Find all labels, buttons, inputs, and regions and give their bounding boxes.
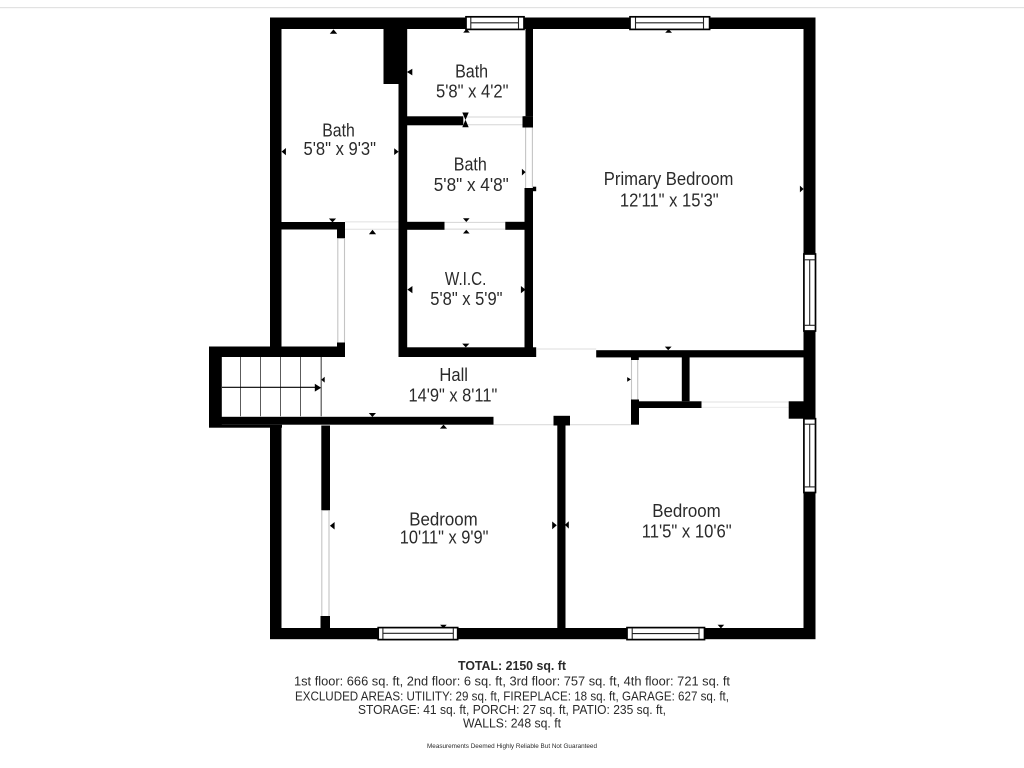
svg-text:Bath: Bath [322, 120, 355, 140]
svg-text:12'11" x 15'3": 12'11" x 15'3" [620, 190, 719, 210]
svg-text:5'8" x 5'9": 5'8" x 5'9" [430, 289, 502, 309]
svg-text:EXCLUDED AREAS: UTILITY: 29 sq: EXCLUDED AREAS: UTILITY: 29 sq. ft, FIRE… [295, 689, 729, 703]
svg-text:Bath: Bath [454, 155, 487, 175]
svg-text:Hall: Hall [439, 365, 468, 385]
svg-text:Primary Bedroom: Primary Bedroom [604, 169, 734, 189]
svg-text:STORAGE: 41 sq. ft, PORCH: 27: STORAGE: 41 sq. ft, PORCH: 27 sq. ft, PA… [358, 703, 666, 717]
svg-text:W.I.C.: W.I.C. [445, 269, 487, 289]
svg-text:Bedroom: Bedroom [409, 510, 478, 530]
svg-text:Measurements Deemed Highly Rel: Measurements Deemed Highly Reliable But … [427, 743, 597, 750]
svg-text:14'9" x 8'11": 14'9" x 8'11" [409, 386, 498, 406]
svg-text:5'8" x 9'3": 5'8" x 9'3" [304, 139, 377, 159]
svg-text:10'11" x 9'9": 10'11" x 9'9" [400, 528, 489, 548]
svg-text:5'8" x 4'8": 5'8" x 4'8" [434, 175, 509, 195]
svg-text:5'8" x 4'2": 5'8" x 4'2" [436, 82, 509, 102]
svg-text:Bedroom: Bedroom [652, 501, 721, 521]
svg-text:1st floor: 666 sq. ft, 2nd flo: 1st floor: 666 sq. ft, 2nd floor: 6 sq. … [294, 674, 730, 689]
svg-text:TOTAL: 2150 sq. ft: TOTAL: 2150 sq. ft [458, 659, 567, 673]
svg-text:Bath: Bath [455, 62, 488, 82]
svg-text:11'5" x 10'6": 11'5" x 10'6" [642, 521, 732, 541]
svg-text:WALLS: 248 sq. ft: WALLS: 248 sq. ft [463, 717, 562, 731]
